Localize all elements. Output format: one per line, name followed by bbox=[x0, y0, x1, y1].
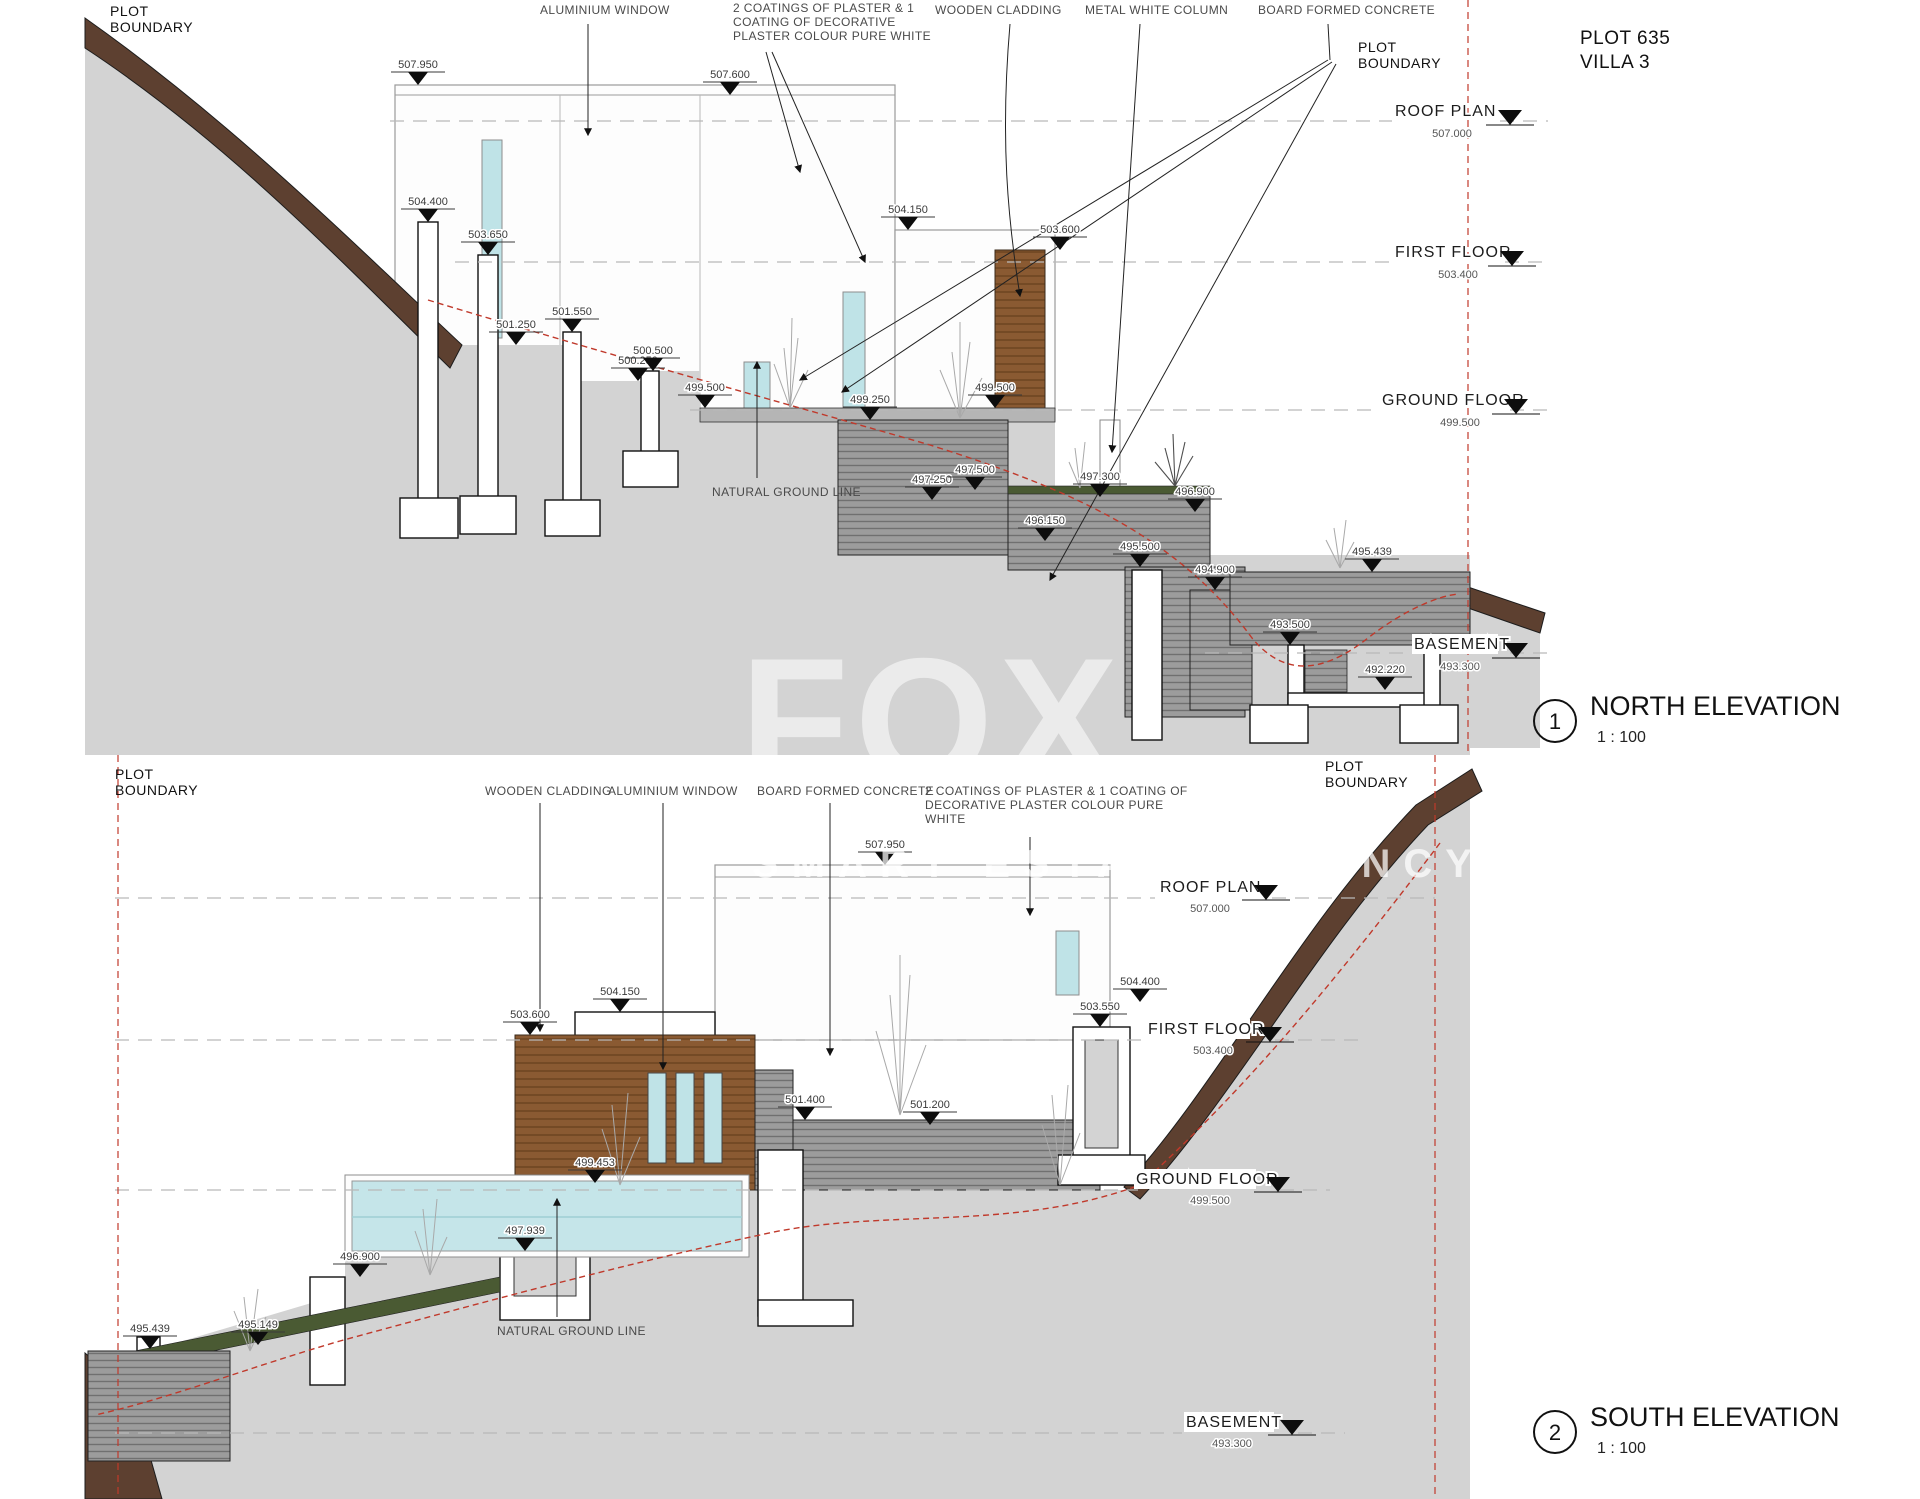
north-elevation-title: NORTH ELEVATION bbox=[1590, 691, 1841, 721]
wooden-cladding-callout: WOODEN CLADDING bbox=[935, 3, 1062, 17]
first-floor-value: 503.400 bbox=[1193, 1045, 1233, 1057]
spot-elevation: 499.500 bbox=[685, 382, 725, 394]
aluminium-window bbox=[704, 1073, 722, 1163]
spot-elevation: 504.150 bbox=[600, 986, 640, 998]
spot-elevation: 501.200 bbox=[910, 1099, 950, 1111]
plot-boundary-label-left: PLOT bbox=[115, 766, 154, 782]
svg-text:BOUNDARY: BOUNDARY bbox=[115, 782, 198, 798]
spot-elevation: 494.900 bbox=[1195, 564, 1235, 576]
basement-value: 493.300 bbox=[1212, 1438, 1252, 1450]
plot-boundary-label-right: PLOT bbox=[1358, 39, 1397, 55]
spot-elevation: 493.500 bbox=[1270, 619, 1310, 631]
basement-value: 493.300 bbox=[1440, 661, 1480, 673]
aluminium-window bbox=[648, 1073, 666, 1163]
spot-elevation: 499.250 bbox=[850, 394, 890, 406]
aluminium-window bbox=[843, 292, 865, 410]
spot-elevation: 501.250 bbox=[496, 319, 536, 331]
view-number: 1 bbox=[1549, 709, 1561, 734]
basement-label: BASEMENT bbox=[1414, 636, 1510, 653]
metal-column-callout: METAL WHITE COLUMN bbox=[1085, 3, 1228, 17]
spot-elevation: 497.939 bbox=[505, 1225, 545, 1237]
svg-text:DECORATIVE PLASTER COLOUR PURE: DECORATIVE PLASTER COLOUR PURE bbox=[925, 798, 1164, 812]
plot-boundary-label-right: PLOT bbox=[1325, 758, 1364, 774]
ground-floor-label: GROUND FLOOR bbox=[1382, 392, 1525, 409]
spot-elevation: 496.150 bbox=[1025, 515, 1065, 527]
wooden-cladding-callout: WOODEN CLADDING bbox=[485, 784, 612, 798]
spot-elevation: 499.500 bbox=[975, 382, 1015, 394]
spot-elevation: 496.900 bbox=[340, 1251, 380, 1263]
natural-ground-line-label: NATURAL GROUND LINE bbox=[497, 1324, 646, 1338]
spot-elevation: 501.400 bbox=[785, 1094, 825, 1106]
north-elevation-drawing: 507.950 507.600 504.400 503.650 501.250 … bbox=[0, 0, 1920, 755]
plot-number: PLOT 635 bbox=[1580, 28, 1670, 49]
spot-elevation: 500.500 bbox=[633, 345, 673, 357]
svg-text:COATING OF DECORATIVE: COATING OF DECORATIVE bbox=[733, 15, 896, 29]
elevation-sheet: 507.950 507.600 504.400 503.650 501.250 … bbox=[0, 0, 1920, 1499]
spot-elevation: 495.149 bbox=[238, 1319, 278, 1331]
svg-text:WHITE: WHITE bbox=[925, 812, 966, 826]
plot-boundary-label: PLOT bbox=[110, 3, 149, 19]
natural-ground-line-label: NATURAL GROUND LINE bbox=[712, 485, 861, 499]
north-elevation-scale: 1 : 100 bbox=[1597, 729, 1646, 746]
ground-floor-value: 499.500 bbox=[1440, 417, 1480, 429]
roof-plan-label: ROOF PLAN bbox=[1160, 879, 1261, 896]
spot-elevation: 497.300 bbox=[1080, 471, 1120, 483]
spot-elevation: 507.600 bbox=[710, 69, 750, 81]
south-elevation-drawing: 507.950 504.150 503.600 501.400 501.200 … bbox=[0, 755, 1920, 1499]
roof-plan-value: 507.000 bbox=[1432, 128, 1472, 140]
spot-elevation: 499.453 bbox=[575, 1157, 615, 1169]
spot-elevation: 496.900 bbox=[1175, 486, 1215, 498]
aluminium-window-callout: ALUMINIUM WINDOW bbox=[540, 3, 670, 17]
roof-plan-label: ROOF PLAN bbox=[1395, 103, 1496, 120]
svg-text:PLASTER COLOUR PURE WHITE: PLASTER COLOUR PURE WHITE bbox=[733, 29, 931, 43]
board-concrete-callout: BOARD FORMED CONCRETE bbox=[757, 784, 934, 798]
plaster-callout: 2 COATINGS OF PLASTER & 1 bbox=[733, 1, 914, 15]
south-title-block: 2 SOUTH ELEVATION 1 : 100 bbox=[1534, 1402, 1840, 1457]
swimming-pool bbox=[345, 1175, 749, 1257]
svg-text:BOUNDARY: BOUNDARY bbox=[1325, 774, 1408, 790]
plaster-callout: 2 COATINGS OF PLASTER & 1 COATING OF bbox=[925, 784, 1188, 798]
spot-elevation: 503.600 bbox=[510, 1009, 550, 1021]
spot-elevation: 503.650 bbox=[468, 229, 508, 241]
roof-plan-value: 507.000 bbox=[1190, 903, 1230, 915]
south-building bbox=[515, 865, 1110, 1190]
spot-elevation: 495.439 bbox=[130, 1323, 170, 1335]
spot-elevation: 497.500 bbox=[955, 464, 995, 476]
aluminium-window bbox=[676, 1073, 694, 1163]
spot-elevation: 492.220 bbox=[1365, 664, 1405, 676]
ground-floor-value: 499.500 bbox=[1190, 1195, 1230, 1207]
spot-elevation: 504.150 bbox=[888, 204, 928, 216]
spot-elevation: 501.550 bbox=[552, 306, 592, 318]
board-concrete-callout: BOARD FORMED CONCRETE bbox=[1258, 3, 1435, 17]
view-number: 2 bbox=[1549, 1420, 1561, 1445]
north-title-block: PLOT 635 VILLA 3 1 NORTH ELEVATION 1 : 1… bbox=[1534, 28, 1841, 746]
spot-elevation: 497.250 bbox=[912, 474, 952, 486]
spot-elevation: 504.400 bbox=[408, 196, 448, 208]
pool-water bbox=[352, 1181, 742, 1251]
villa-number: VILLA 3 bbox=[1580, 52, 1650, 73]
basement-label: BASEMENT bbox=[1186, 1414, 1282, 1431]
aluminium-window bbox=[1056, 931, 1079, 995]
ground-floor-label: GROUND FLOOR bbox=[1136, 1171, 1279, 1188]
spot-elevation: 495.500 bbox=[1120, 541, 1160, 553]
svg-text:BOUNDARY: BOUNDARY bbox=[110, 19, 193, 35]
first-floor-label: FIRST FLOOR bbox=[1148, 1021, 1265, 1038]
spot-elevation: 503.550 bbox=[1080, 1001, 1120, 1013]
aluminium-window-callout: ALUMINIUM WINDOW bbox=[608, 784, 738, 798]
first-floor-label: FIRST FLOOR bbox=[1395, 244, 1512, 261]
spot-elevation: 503.600 bbox=[1040, 224, 1080, 236]
spot-elevation: 495.439 bbox=[1352, 546, 1392, 558]
spot-elevation: 507.950 bbox=[398, 59, 438, 71]
svg-text:BOUNDARY: BOUNDARY bbox=[1358, 55, 1441, 71]
south-elevation-scale: 1 : 100 bbox=[1597, 1440, 1646, 1457]
south-elevation-title: SOUTH ELEVATION bbox=[1590, 1402, 1840, 1432]
spot-elevation: 504.400 bbox=[1120, 976, 1160, 988]
spot-elevation: 507.950 bbox=[865, 839, 905, 851]
first-floor-value: 503.400 bbox=[1438, 269, 1478, 281]
